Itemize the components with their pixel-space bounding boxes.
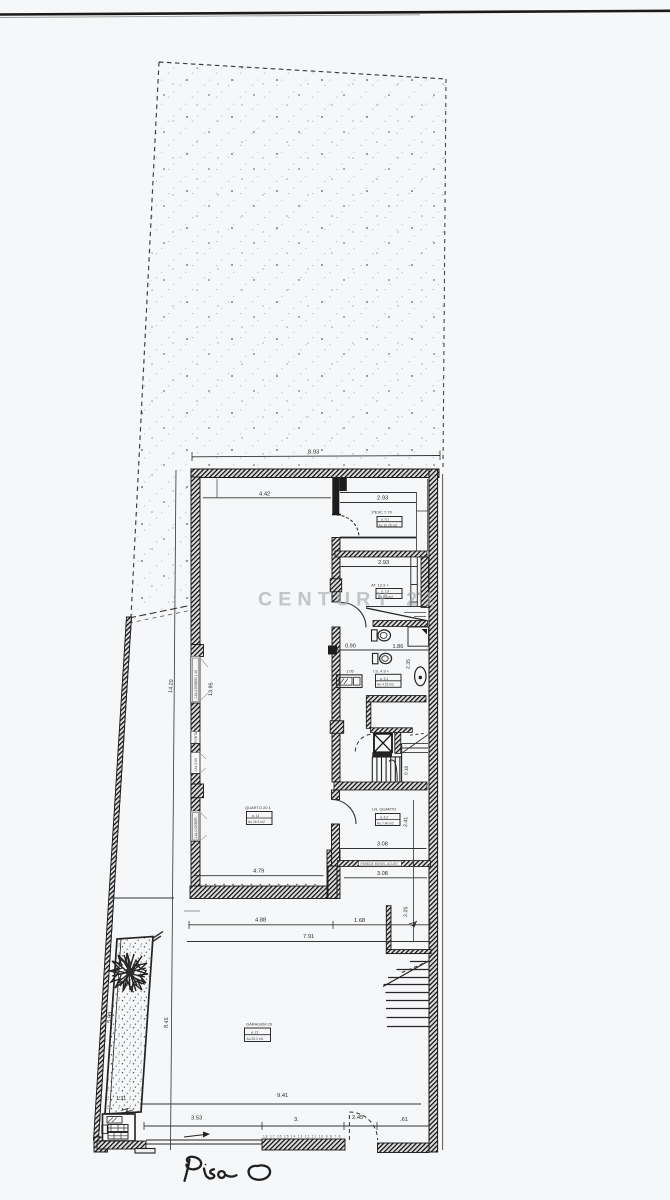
svg-text:14.20: 14.20 [168,679,175,693]
svg-text:LN. QUARTO: LN. QUARTO [372,807,396,812]
svg-text:2.93: 2.93 [377,496,388,502]
svg-text:8.45: 8.45 [164,1017,171,1028]
svg-text:4.88: 4.88 [255,918,266,924]
svg-text:QUARTO 20.1: QUARTO 20.1 [245,805,272,810]
svg-text:2.41: 2.41 [403,817,409,827]
svg-text:1ºESC 7.70: 1ºESC 7.70 [371,510,393,515]
svg-text:1.31: 1.31 [116,1096,126,1102]
svg-text:J.AL 0.60: J.AL 0.60 [194,758,198,772]
svg-text:3.08: 3.08 [377,871,388,877]
svg-text:13.95: 13.95 [208,682,214,696]
svg-text:1.68: 1.68 [354,918,365,924]
svg-text:GARAGEM 29: GARAGEM 29 [246,1022,273,1027]
svg-text:PAREDE MOVEL ACUST.: PAREDE MOVEL ACUST. [361,862,399,866]
svg-text:1.05: 1.05 [346,669,355,674]
svg-text:7.91: 7.91 [303,934,314,940]
svg-text:I.S. 4.9 +: I.S. 4.9 + [373,668,390,673]
svg-text:Au 7.40 m2: Au 7.40 m2 [377,821,394,825]
svg-text:3.: 3. [294,1117,299,1123]
svg-text:2.35: 2.35 [406,659,412,669]
svg-text:18 17 16 15 14 13 12 11 10 9 8: 18 17 16 15 14 13 12 11 10 9 8 7 6 [263,1134,341,1138]
svg-text:PORTA: PORTA [194,731,198,743]
svg-text:Au 10.25 m2: Au 10.25 m2 [379,523,398,527]
svg-text:2.93: 2.93 [378,560,389,566]
svg-text:0.90: 0.90 [345,644,356,650]
svg-text:4.42: 4.42 [259,492,270,498]
svg-text:a. 14: a. 14 [252,814,259,818]
svg-text:9.41: 9.41 [277,1093,288,1099]
svg-text:J.AL.CORRER: J.AL.CORRER [194,817,198,839]
svg-text:1.86: 1.86 [393,644,404,650]
svg-text:3.08: 3.08 [377,842,388,848]
svg-text:8.93: 8.93 [308,450,319,456]
svg-text:.61: .61 [400,1117,408,1123]
svg-text:Au 16.9 m2: Au 16.9 m2 [248,820,265,824]
svg-text:a. 21: a. 21 [251,1031,258,1035]
svg-text:Au 25.3 m2: Au 25.3 m2 [247,1037,264,1041]
svg-text:a. 6.2: a. 6.2 [380,816,388,820]
svg-text:4.79: 4.79 [253,869,264,875]
svg-text:CENTURY 21: CENTURY 21 [258,589,440,611]
svg-text:2.45: 2.45 [352,1115,363,1121]
svg-text:AT. 12.9 +: AT. 12.9 + [371,583,389,588]
svg-text:a. 3.1: a. 3.1 [380,677,388,681]
svg-text:J.AL.CORRER 1.40: J.AL.CORRER 1.40 [194,670,198,699]
svg-text:3.53: 3.53 [191,1116,202,1122]
svg-text:0.18: 0.18 [404,765,409,775]
svg-text:Au 4.15 m2: Au 4.15 m2 [377,683,394,687]
svg-text:2.25: 2.25 [403,907,409,917]
svg-text:a. 9.1: a. 9.1 [381,518,389,522]
svg-text:5.99: 5.99 [107,1011,114,1023]
